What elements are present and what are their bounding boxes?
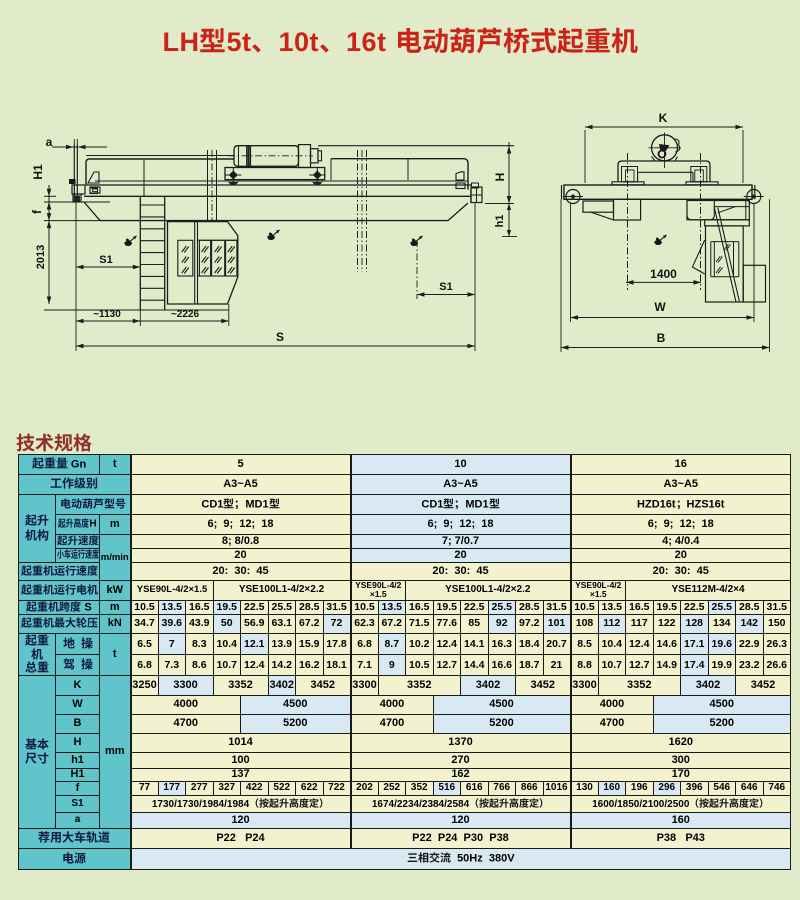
svg-text:1400: 1400	[650, 267, 677, 281]
svg-text:a: a	[46, 135, 53, 149]
svg-text:h1: h1	[494, 215, 506, 228]
svg-text:S: S	[276, 330, 284, 344]
svg-text:H: H	[493, 173, 507, 182]
svg-text:S1: S1	[99, 254, 112, 266]
svg-text:S1: S1	[439, 281, 452, 293]
svg-text:B: B	[657, 331, 666, 345]
svg-text:f: f	[30, 209, 44, 214]
svg-text:H1: H1	[31, 164, 45, 180]
svg-text:W: W	[654, 300, 666, 314]
svg-text:~1130: ~1130	[93, 309, 121, 320]
svg-text:K: K	[659, 111, 668, 125]
svg-text:~2226: ~2226	[171, 309, 200, 320]
svg-text:2013: 2013	[35, 245, 47, 269]
